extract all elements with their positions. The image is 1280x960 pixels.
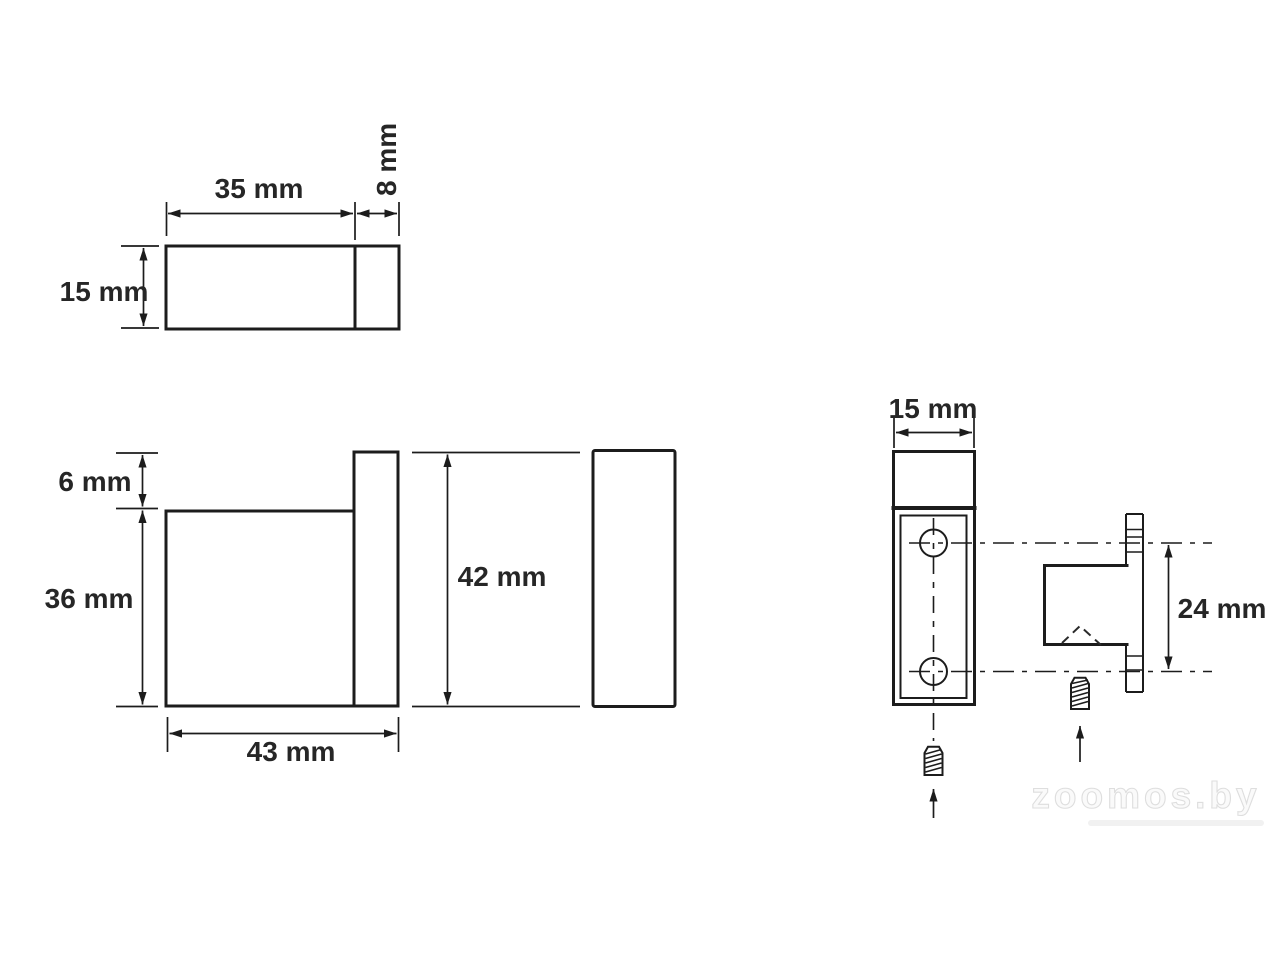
dim-side-total-height: 42 mm — [412, 453, 580, 707]
watermark-smudge — [1088, 820, 1264, 826]
hook-block-side — [1045, 566, 1128, 645]
wall-plate-side — [1126, 514, 1143, 692]
label-side-body-height: 36 mm — [45, 583, 134, 614]
hook-dimension-drawing: 35 mm 8 mm 15 mm 6 mm 36 mm — [0, 0, 1280, 960]
label-side-total-height: 42 mm — [458, 561, 547, 592]
side-view-body — [166, 511, 354, 706]
dim-top-width: 35 mm — [167, 173, 356, 240]
dim-side-offsets: 6 mm 36 mm — [45, 453, 158, 707]
watermark-text: zoomos.by — [1031, 775, 1260, 816]
label-side-top-offset: 6 mm — [58, 466, 131, 497]
side-view: 6 mm 36 mm 42 mm 43 mm — [45, 451, 675, 768]
top-view-body — [166, 246, 399, 329]
technical-drawing-page: 35 mm 8 mm 15 mm 6 mm 36 mm — [0, 0, 1280, 960]
dim-top-depth: 8 mm — [357, 123, 402, 236]
label-top-depth: 8 mm — [371, 123, 402, 196]
hidden-edge-dashes — [1062, 626, 1101, 645]
front-view-body — [894, 452, 975, 705]
label-front-width: 15 mm — [889, 393, 978, 424]
top-view: 35 mm 8 mm 15 mm — [60, 123, 402, 329]
hook-plate-front-outline — [593, 451, 675, 707]
label-side-total-width: 43 mm — [247, 736, 336, 767]
screw-threads — [1072, 680, 1088, 706]
screw-threads — [926, 750, 942, 773]
label-hole-spacing: 24 mm — [1178, 593, 1267, 624]
dim-top-height: 15 mm — [60, 246, 159, 328]
grub-screw-right-icon — [1071, 678, 1089, 709]
watermark: zoomos.by — [1031, 775, 1264, 826]
label-top-height: 15 mm — [60, 276, 149, 307]
side-view-hook-plate — [354, 452, 398, 706]
mounting-plate-side-view: 24 mm — [1045, 514, 1267, 692]
grub-screw-left-icon — [925, 747, 943, 775]
label-top-width: 35 mm — [215, 173, 304, 204]
dim-hole-spacing: 24 mm — [1169, 545, 1267, 669]
dim-side-total-width: 43 mm — [168, 717, 399, 767]
dim-front-width: 15 mm — [889, 393, 978, 448]
